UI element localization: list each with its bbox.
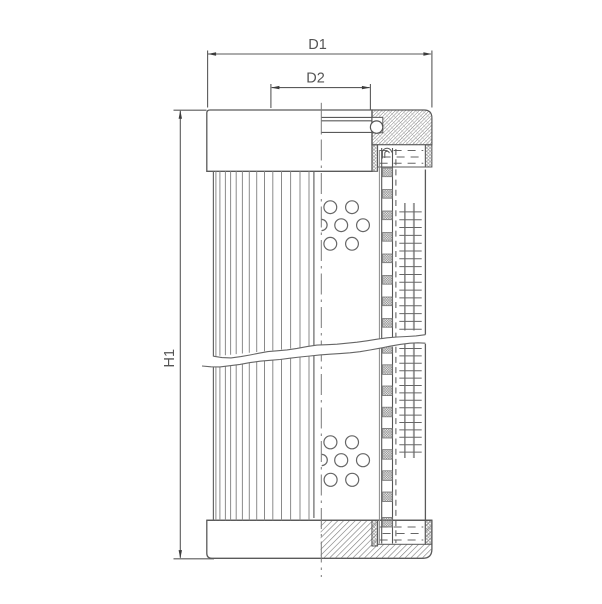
- svg-text:D2: D2: [306, 71, 325, 87]
- svg-text:D1: D1: [308, 37, 327, 53]
- svg-text:H1: H1: [162, 349, 178, 368]
